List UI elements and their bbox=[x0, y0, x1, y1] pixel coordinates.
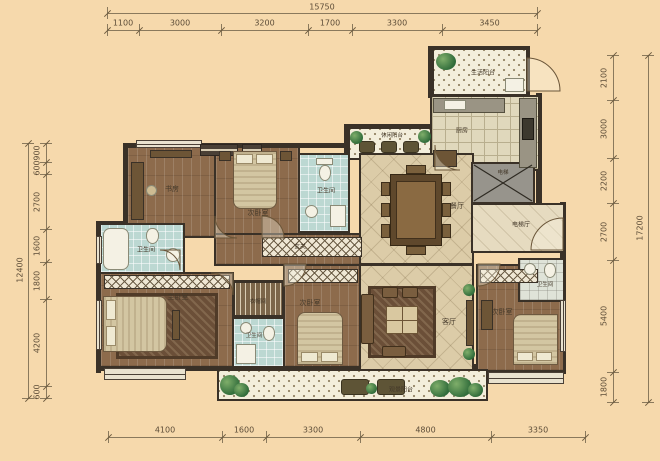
dim-label: 4200 bbox=[33, 332, 42, 352]
chair bbox=[406, 246, 426, 255]
window bbox=[96, 236, 102, 264]
tv-cabinet bbox=[466, 300, 474, 346]
label-bedroom-mid: 次卧室 bbox=[300, 298, 321, 308]
entry-hatch bbox=[262, 237, 362, 257]
pillow bbox=[301, 352, 318, 362]
label-living: 客厅 bbox=[442, 317, 456, 327]
dim-label: 900 bbox=[33, 145, 42, 160]
dim-label: 3000 bbox=[600, 119, 609, 139]
toilet bbox=[263, 326, 275, 341]
bay-window-master bbox=[104, 368, 186, 380]
label-bath-west: 卫生间 bbox=[137, 245, 155, 254]
label-cloakroom: 衣帽间 bbox=[250, 297, 267, 305]
nightstand bbox=[219, 151, 231, 161]
plant bbox=[463, 348, 475, 360]
plant bbox=[468, 383, 483, 397]
toilet bbox=[319, 165, 331, 181]
label-study: 书房 bbox=[165, 184, 179, 194]
pillow bbox=[517, 352, 533, 361]
stove-burner bbox=[522, 118, 534, 140]
dim-label: 3200 bbox=[254, 19, 274, 28]
plant bbox=[418, 130, 431, 143]
shower bbox=[236, 344, 256, 364]
sink bbox=[305, 205, 318, 218]
kitchen-sink bbox=[444, 100, 466, 110]
chair bbox=[442, 182, 451, 196]
dim-line-total bbox=[28, 143, 29, 398]
bathtub bbox=[103, 228, 129, 270]
sink bbox=[524, 263, 536, 275]
pillow bbox=[106, 300, 116, 320]
chair bbox=[381, 224, 390, 238]
nightstand bbox=[280, 151, 292, 161]
label-balcony-utility: 生活阳台 bbox=[471, 68, 495, 77]
chair bbox=[381, 182, 390, 196]
dim-label: 3300 bbox=[303, 426, 323, 435]
window bbox=[96, 300, 102, 350]
label-bedroom-se: 次卧室 bbox=[492, 307, 513, 317]
sofa bbox=[361, 294, 374, 344]
label-bedroom-north: 次卧室 bbox=[248, 208, 269, 218]
label-master: 主卧室 bbox=[168, 292, 189, 302]
dim-label: 1800 bbox=[600, 377, 609, 397]
window bbox=[560, 300, 566, 352]
dim-line-total bbox=[107, 13, 537, 14]
planter bbox=[341, 379, 369, 395]
plant bbox=[366, 383, 377, 394]
label-bath-se: 卫生间 bbox=[537, 280, 554, 288]
dim-line bbox=[613, 55, 614, 402]
chair bbox=[442, 224, 451, 238]
label-dining: 餐厅 bbox=[450, 201, 464, 211]
label-balcony-leisure: 休闲阳台 bbox=[381, 131, 403, 139]
desk bbox=[131, 162, 144, 220]
dim-label: 2100 bbox=[600, 67, 609, 87]
chair bbox=[406, 165, 426, 174]
dim-line bbox=[108, 437, 585, 438]
toilet-tank bbox=[316, 158, 333, 165]
plant bbox=[234, 383, 249, 397]
pillow bbox=[321, 352, 338, 362]
armchair bbox=[382, 346, 406, 357]
dining-table-top bbox=[396, 181, 436, 239]
dim-label: 600 bbox=[33, 160, 42, 175]
dim-label: 1800 bbox=[33, 270, 42, 290]
dim-line bbox=[107, 30, 537, 31]
planter bbox=[381, 141, 397, 153]
pillow bbox=[536, 352, 552, 361]
dim-label: 2200 bbox=[600, 170, 609, 190]
bench bbox=[172, 310, 180, 340]
label-elevator: 电梯 bbox=[497, 168, 508, 176]
fridge bbox=[433, 150, 457, 167]
shower bbox=[330, 205, 346, 227]
bay-window-se bbox=[488, 372, 564, 384]
toilet bbox=[544, 263, 556, 278]
washer bbox=[505, 78, 524, 92]
dim-label: 1600 bbox=[234, 426, 254, 435]
armchair bbox=[402, 287, 418, 298]
planter bbox=[403, 141, 419, 153]
coffee-table bbox=[386, 306, 418, 334]
dim-label: 3350 bbox=[528, 426, 548, 435]
plant bbox=[436, 53, 456, 70]
label-kitchen: 厨房 bbox=[456, 126, 468, 135]
pillow bbox=[236, 154, 253, 164]
label-balcony-view: 观景阳台 bbox=[389, 385, 413, 394]
dim-label: 1600 bbox=[33, 235, 42, 255]
dim-label: 4800 bbox=[415, 426, 435, 435]
bookshelf bbox=[150, 150, 192, 158]
dim-label: 4100 bbox=[155, 426, 175, 435]
sink bbox=[166, 248, 180, 262]
planter bbox=[359, 141, 375, 153]
dim-label: 3000 bbox=[170, 19, 190, 28]
wardrobe bbox=[288, 269, 358, 283]
dim-label: 12400 bbox=[16, 257, 25, 282]
plant bbox=[350, 131, 363, 144]
chair bbox=[146, 185, 157, 196]
plant bbox=[463, 284, 475, 296]
chair bbox=[381, 203, 390, 217]
dim-label: 5400 bbox=[600, 306, 609, 326]
label-bath-north: 卫生间 bbox=[317, 186, 335, 195]
dim-line-total bbox=[648, 55, 649, 402]
dim-line bbox=[46, 143, 47, 398]
dim-label: 2700 bbox=[600, 221, 609, 241]
label-bath-master: 卫生间 bbox=[246, 331, 263, 339]
toilet bbox=[146, 228, 159, 244]
dim-label: 3450 bbox=[479, 19, 499, 28]
dim-label: 17200 bbox=[636, 215, 645, 240]
pillow bbox=[106, 326, 116, 346]
dim-label: 3300 bbox=[387, 19, 407, 28]
dim-label: 1700 bbox=[320, 19, 340, 28]
pillow bbox=[256, 154, 273, 164]
label-entry: 玄关 bbox=[294, 242, 306, 251]
armchair bbox=[382, 287, 398, 298]
dim-label: 2700 bbox=[33, 191, 42, 211]
label-elevator-hall: 电梯厅 bbox=[512, 220, 530, 229]
dim-label: 15750 bbox=[309, 3, 334, 12]
master-wardrobe bbox=[104, 275, 230, 289]
bay-window bbox=[136, 140, 202, 148]
dim-label: 1100 bbox=[113, 19, 133, 28]
plant bbox=[430, 380, 450, 397]
floor-plan-canvas: 1100300032001700330034504100160033004800… bbox=[0, 0, 660, 461]
